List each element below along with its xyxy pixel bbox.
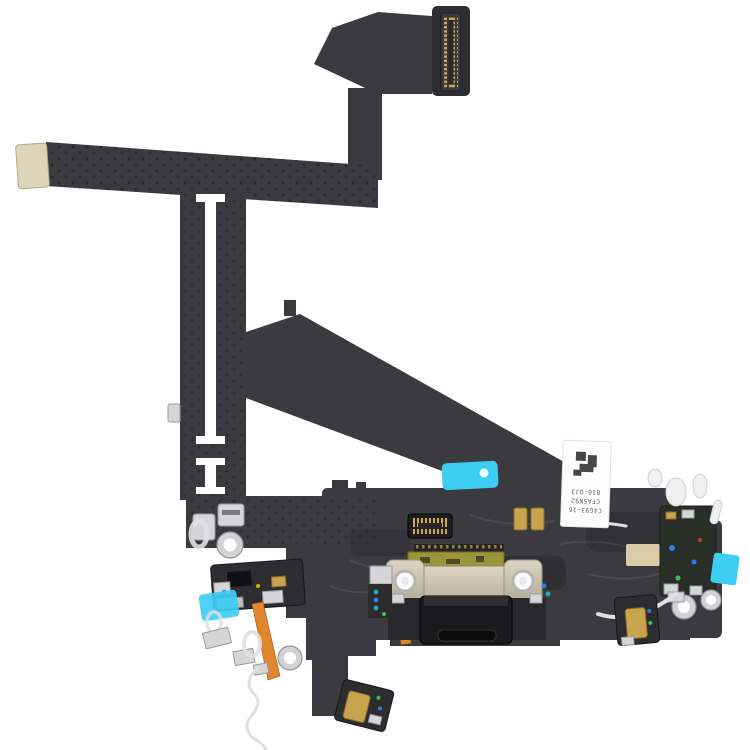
microphone-left: [227, 570, 252, 587]
microphone-module-right: [614, 594, 660, 645]
adhesive-sticker-right: [710, 552, 740, 585]
port-wing-left: [388, 598, 422, 640]
bottom-mic-branch: [202, 612, 394, 750]
label-line-1: C4G93-16: [568, 505, 602, 513]
cable-diagonal-band: [246, 314, 582, 500]
charging-flex-cable-photo: C4G93-16 CFASN92 816-QJ3: [0, 0, 750, 750]
cable-link: [314, 12, 432, 94]
smd-cluster-left: [368, 566, 392, 618]
ribbon-side-component: [168, 404, 180, 422]
diagonal-tab: [284, 300, 296, 316]
lightning-port-slot: [438, 630, 496, 641]
bottom-mic-pcb: [334, 679, 395, 732]
microphone-gold-right: [625, 607, 648, 639]
label-line-3: 816-QJ3: [571, 487, 601, 495]
product-photo: C4G93-16 CFASN92 816-QJ3: [0, 0, 750, 750]
sticker-hole: [480, 469, 489, 478]
connector-slot: [449, 20, 454, 84]
flex-cable-upper-run: [16, 6, 582, 500]
label-line-2: CFASN92: [571, 496, 601, 504]
port-wing-right: [510, 598, 546, 640]
cable-end-stiffener: [16, 143, 50, 189]
board-connector: [432, 6, 470, 96]
serial-label: C4G93-16 CFASN92 816-QJ3: [560, 440, 611, 528]
adhesive-sticker-top: [441, 461, 498, 491]
tan-pad: [626, 544, 660, 566]
antenna-connector: [408, 514, 452, 538]
antenna-wires-left: [202, 612, 302, 750]
